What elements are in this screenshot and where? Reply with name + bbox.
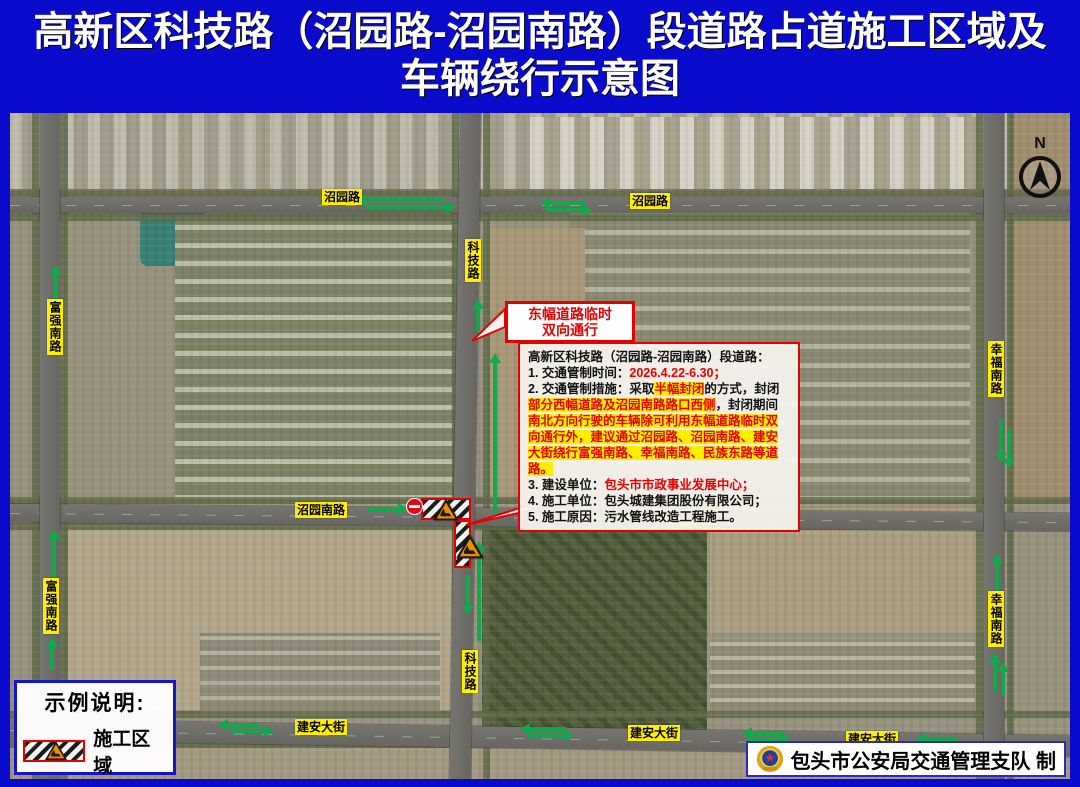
road-label: 幸福南路 [988,591,1004,647]
traffic-notice-box: 高新区科技路（沼园路-沼园南路）段道路：1. 交通管制时间：2026.4.22-… [518,342,800,532]
road-label: 建安大街 [628,725,680,741]
road-label: 沼园路 [322,189,362,205]
route-arrow [462,575,474,615]
route-arrow [546,204,592,216]
construction-zone-icon [23,740,85,762]
map: 东幅道路临时 双向通行 高新区科技路（沼园路-沼园南路）段道路：1. 交通管制时… [10,113,1070,779]
road-label: 幸福南路 [988,341,1004,397]
route-arrow [368,503,408,515]
construction-warning-icon [45,741,67,761]
notice-line: 高新区科技路（沼园路-沼园南路）段道路： [528,349,790,365]
legend: 示例说明: 施工区域 通行路线 [14,680,176,775]
police-badge-icon [756,745,784,773]
route-arrow [50,265,62,299]
construction-warning-icon [456,535,484,559]
route-arrow [528,729,574,741]
road-label: 科技路 [465,239,481,282]
page-title-line1: 高新区科技路（沼园路-沼园南路）段道路占道施工区域及 [0,9,1080,56]
road-label: 富强南路 [43,578,59,634]
north-label: N [1016,135,1064,153]
compass: N [1016,135,1064,205]
route-arrow [997,662,1009,696]
route-arrow [46,637,58,669]
route-arrow [489,353,501,513]
notice-line: 4. 施工单位：包头城建集团股份有限公司； [528,493,790,509]
notice-line: 5. 施工原因：污水管线改造工程施工。 [528,509,790,525]
route-arrow [48,529,60,577]
legend-item-construction: 施工区域 [23,724,167,778]
temp-two-way-sign: 东幅道路临时 双向通行 [505,301,635,343]
temp-two-way-line1: 东幅道路临时 [514,306,626,322]
notice-line: 1. 交通管制时间：2026.4.22-6.30； [528,365,790,381]
notice-line: 3. 建设单位：包头市市政事业发展中心； [528,477,790,493]
road-label: 科技路 [462,650,478,693]
road-label: 富强南路 [47,299,63,355]
legend-title: 示例说明: [23,687,167,717]
route-arrow [472,299,484,331]
road-label: 沼园路 [630,193,670,209]
no-entry-sign-icon [407,499,422,514]
legend-item-label: 施工区域 [93,724,167,778]
attribution-box: 包头市公安局交通管理支队 制 [746,741,1066,777]
temp-two-way-line2: 双向通行 [514,322,626,338]
notice-body: 高新区科技路（沼园路-沼园南路）段道路：1. 交通管制时间：2026.4.22-… [528,349,790,525]
page-title: 高新区科技路（沼园路-沼园南路）段道路占道施工区域及 车辆绕行示意图 [0,0,1080,113]
route-arrow [232,725,274,737]
attribution-text: 包头市公安局交通管理支队 制 [790,745,1056,774]
north-arrow-icon [1016,153,1064,201]
road-label: 沼园南路 [295,502,347,518]
route-arrow [1003,429,1015,469]
notice-line: 2. 交通管制措施：采取半幅封闭的方式，封闭部分西幅道路及沼园南路路口西侧，封闭… [528,381,790,477]
page-title-line2: 车辆绕行示意图 [0,56,1080,103]
construction-warning-icon [433,499,459,521]
route-arrow [991,554,1003,594]
route-arrow [366,201,456,213]
road-label: 建安大街 [295,719,347,735]
